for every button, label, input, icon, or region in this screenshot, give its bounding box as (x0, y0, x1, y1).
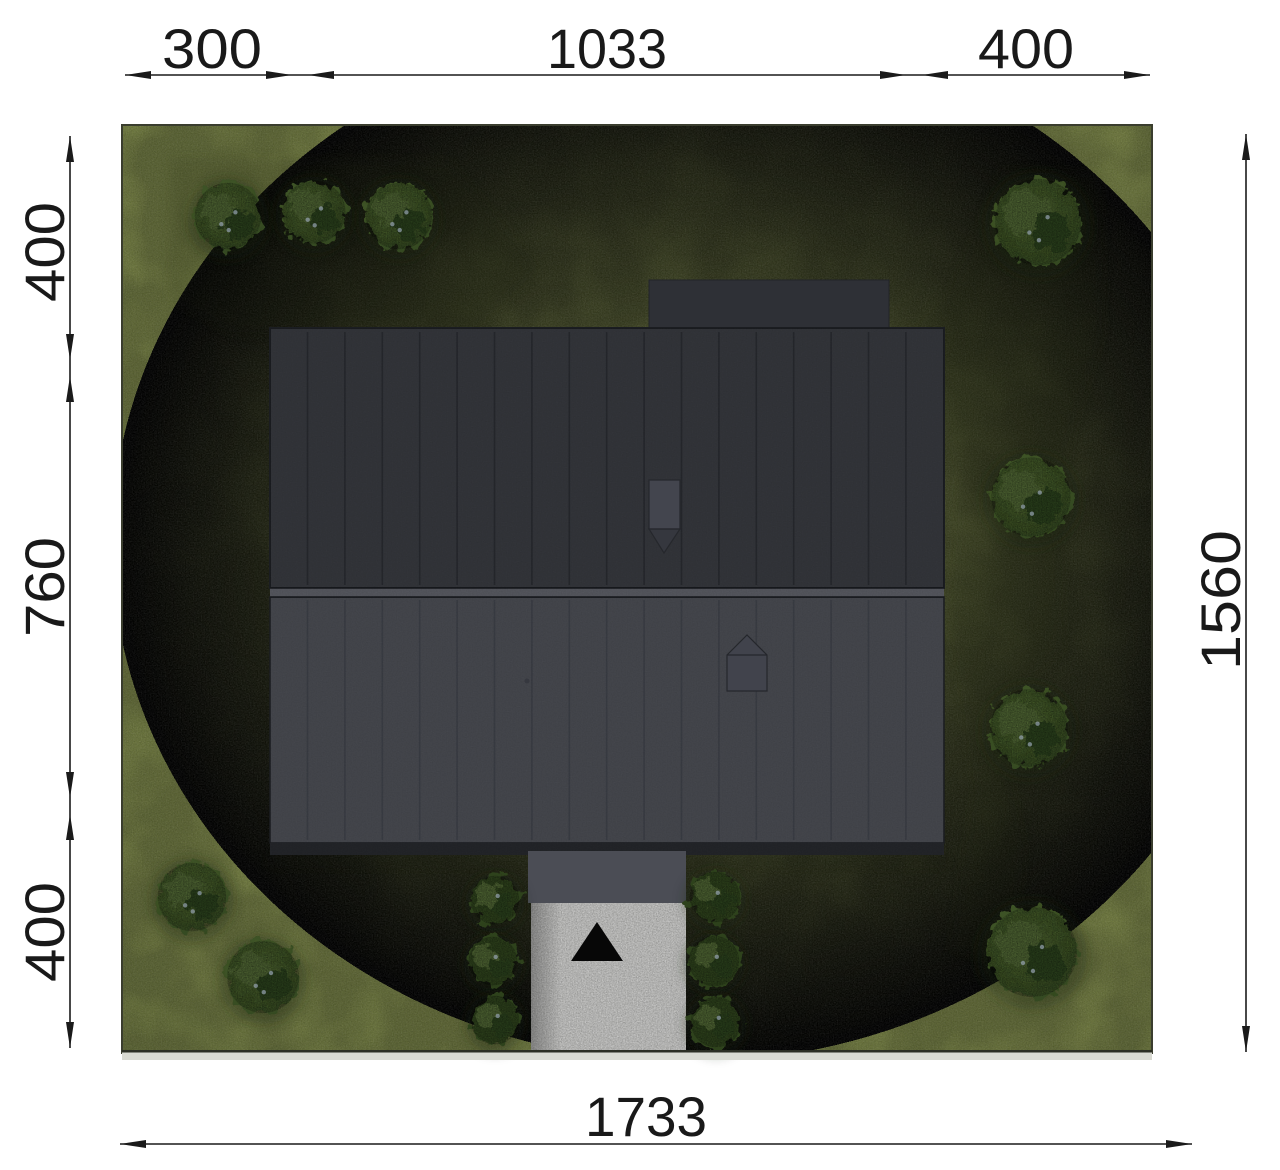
canopy-glint (717, 1016, 721, 1020)
annex-roof (649, 280, 889, 332)
dim-left-bottom-setback: 400 (13, 882, 76, 982)
roof-texture (270, 328, 944, 855)
canopy-glint (319, 206, 323, 210)
canopy-glint (269, 971, 273, 975)
canopy-glint (1035, 722, 1039, 726)
canopy-glint (227, 228, 231, 232)
canopy-glint (1045, 215, 1049, 219)
canopy-glint (313, 223, 317, 227)
canopy-texture (987, 907, 1077, 997)
curb-strip (122, 1053, 1152, 1061)
canopy-texture (283, 181, 346, 244)
canopy-glint (390, 222, 394, 226)
canopy-glint (262, 990, 266, 994)
canopy-texture (227, 941, 299, 1013)
bush (683, 933, 745, 995)
dim-arrowhead (880, 71, 906, 79)
canopy-glint (233, 210, 237, 214)
dim-arrowhead (1242, 1026, 1250, 1052)
canopy-glint (1021, 504, 1025, 508)
canopy-texture (158, 863, 226, 931)
tree (977, 900, 1087, 1010)
canopy-glint (1019, 735, 1023, 739)
canopy-glint (1027, 230, 1031, 234)
dim-bottom-lot-width: 1733 (585, 1085, 707, 1148)
dim-top-left-setback: 300 (162, 17, 262, 80)
dim-arrowhead (1124, 71, 1150, 79)
bush (684, 869, 746, 931)
canopy-glint (1037, 238, 1041, 242)
canopy-glint (404, 210, 408, 214)
canopy-glint (494, 955, 498, 959)
canopy-glint (306, 218, 310, 222)
bush (465, 993, 524, 1052)
tree (985, 172, 1091, 278)
bush (465, 873, 524, 932)
canopy-texture (691, 997, 741, 1047)
dim-right-lot-depth: 1560 (1189, 530, 1252, 670)
terrace-strip (528, 851, 686, 903)
lot-bottom-line (122, 1050, 1152, 1053)
canopy-glint (191, 909, 195, 913)
canopy-glint (1028, 742, 1032, 746)
canopy-texture (366, 183, 433, 250)
canopy-texture (990, 689, 1067, 766)
canopy-glint (1038, 490, 1042, 494)
tree (219, 936, 307, 1024)
dim-arrowhead (125, 71, 151, 79)
dim-arrowhead (1166, 1140, 1192, 1148)
canopy-glint (716, 891, 720, 895)
tree (358, 178, 439, 259)
canopy-glint (197, 891, 201, 895)
dim-top-house-width: 1033 (547, 17, 667, 80)
driveway (528, 851, 686, 1053)
canopy-texture (995, 179, 1081, 265)
tree (983, 452, 1080, 549)
canopy-texture (690, 872, 740, 922)
dim-arrowhead (120, 1140, 146, 1148)
canopy-glint (496, 894, 500, 898)
dim-arrowhead (66, 814, 74, 840)
dim-top-right-setback: 400 (978, 17, 1074, 80)
canopy-texture (469, 937, 518, 986)
tree (982, 684, 1077, 779)
canopy-glint (254, 984, 258, 988)
canopy-glint (1021, 961, 1025, 965)
canopy-glint (1031, 969, 1035, 973)
canopy-texture (471, 996, 520, 1045)
canopy-glint (183, 903, 187, 907)
paving-edge-shade (531, 903, 561, 1053)
dim-arrowhead (1242, 134, 1250, 160)
bush (463, 934, 522, 993)
dim-arrowhead (308, 71, 334, 79)
canopy-glint (496, 1014, 500, 1018)
canopy-texture (471, 876, 520, 925)
dim-arrowhead (922, 71, 948, 79)
dim-arrowhead (266, 71, 292, 79)
canopy-glint (1040, 945, 1044, 949)
dim-arrowhead (66, 1022, 74, 1048)
dim-left-top-setback: 400 (13, 202, 76, 302)
canopy-glint (398, 228, 402, 232)
canopy-glint (1030, 512, 1034, 516)
dim-arrowhead (66, 334, 74, 360)
dim-arrowhead (66, 136, 74, 162)
tree (187, 178, 268, 259)
tree (276, 177, 353, 254)
canopy-texture (195, 183, 262, 250)
site-plan-canvas: 300 1033 400 400 760 400 1560 1733 (0, 0, 1280, 1170)
canopy-glint (219, 222, 223, 226)
site-plan-page: 300 1033 400 400 760 400 1560 1733 (0, 0, 1280, 1170)
dim-arrowhead (66, 376, 74, 402)
canopy-texture (991, 457, 1070, 536)
dim-arrowhead (66, 772, 74, 798)
canopy-glint (715, 955, 719, 959)
tree (150, 858, 234, 942)
dim-left-house-depth: 760 (13, 537, 76, 637)
house-roof (270, 280, 944, 855)
roof-dot (525, 679, 530, 684)
bush (685, 994, 747, 1056)
canopy-texture (689, 936, 739, 986)
